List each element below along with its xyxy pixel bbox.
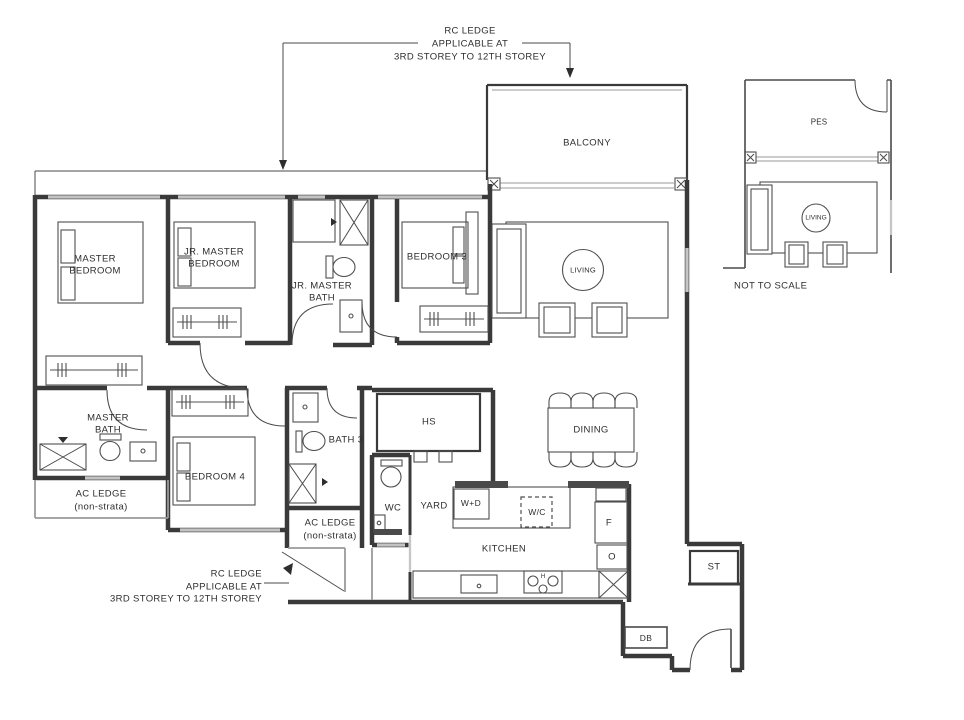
rc-ledge-outline xyxy=(35,171,487,195)
rc-ledge-bottom-note-line2: APPLICABLE AT xyxy=(186,582,262,593)
household-shelter-label: HS xyxy=(422,417,436,428)
pes-inset xyxy=(723,80,891,273)
db-label: DB xyxy=(640,633,653,643)
jr-master-bath-label-line2: BATH xyxy=(309,293,335,304)
kitchen-counters xyxy=(413,481,629,598)
rc-ledge-bottom-note-line3: 3RD STOREY TO 12TH STOREY xyxy=(110,594,262,605)
jr-master-bath-label-line1: JR. MASTER xyxy=(292,281,352,292)
master-bedroom-label-line1: MASTER xyxy=(74,254,116,265)
ac-ledge-left-label-line2: (non-strata) xyxy=(74,502,127,513)
rc-ledge-top-note-line3: 3RD STOREY TO 12TH STOREY xyxy=(394,52,546,63)
wc-chiller-label: W/C xyxy=(528,507,546,517)
yard-label: YARD xyxy=(420,501,447,512)
windows xyxy=(48,197,687,572)
store-label: ST xyxy=(708,562,721,573)
master-bedroom-furniture xyxy=(46,222,143,385)
ac-ledge-mid-label-line2: (non-strata) xyxy=(303,531,356,542)
floor-plan-page: RC LEDGE APPLICABLE AT 3RD STOREY TO 12T… xyxy=(0,0,964,720)
pes-living-label: LIVING xyxy=(805,215,826,222)
fridge-label: F xyxy=(606,518,612,529)
balcony-label: BALCONY xyxy=(563,138,611,149)
dining-label: DINING xyxy=(573,425,608,436)
hob-label: H xyxy=(541,574,545,580)
master-bath-label-line2: BATH xyxy=(95,425,121,436)
rc-ledge-top-note-line1: RC LEDGE xyxy=(444,26,495,37)
master-bath-fixtures xyxy=(40,434,156,470)
bath3-label: BATH 3 xyxy=(329,435,364,446)
jr-master-bedroom-label-line1: JR. MASTER xyxy=(184,247,244,258)
kitchen-label: KITCHEN xyxy=(482,544,526,555)
living-furniture xyxy=(492,222,668,337)
pes-label: PES xyxy=(811,118,828,127)
wc-label: WC xyxy=(385,503,402,514)
bath3-fixtures xyxy=(289,393,328,503)
rc-ledge-bottom-note-line1: RC LEDGE xyxy=(211,569,262,580)
ac-ledge-left-label-line1: AC LEDGE xyxy=(76,489,127,500)
not-to-scale-label: NOT TO SCALE xyxy=(734,281,807,292)
floor-plan-drawing xyxy=(0,0,964,720)
door-arcs[interactable] xyxy=(107,302,731,670)
bedroom4-furniture xyxy=(172,389,255,505)
bedroom3-label: BEDROOM 3 xyxy=(407,252,467,263)
rc-ledge-top-note-line2: APPLICABLE AT xyxy=(432,39,508,50)
washer-dryer-label: W+D xyxy=(461,498,481,508)
bedroom3-furniture xyxy=(402,212,488,332)
ac-ledge-mid-label-line1: AC LEDGE xyxy=(305,518,356,529)
ac-ledge-mid-outline xyxy=(288,548,372,600)
bedroom4-label: BEDROOM 4 xyxy=(185,472,245,483)
household-shelter xyxy=(377,394,480,462)
balcony-sliding-door[interactable] xyxy=(488,178,687,190)
rc-ledge-bottom-leader xyxy=(264,552,344,591)
jr-master-bedroom-furniture xyxy=(173,222,255,337)
wc-fixtures xyxy=(374,460,402,535)
jr-master-bedroom-label-line2: BEDROOM xyxy=(188,259,240,270)
master-bath-label-line1: MASTER xyxy=(87,413,129,424)
balcony-walls xyxy=(487,85,687,180)
oven-label: O xyxy=(608,552,616,563)
master-bedroom-label-line2: BEDROOM xyxy=(69,266,121,277)
living-label: LIVING xyxy=(570,266,596,275)
